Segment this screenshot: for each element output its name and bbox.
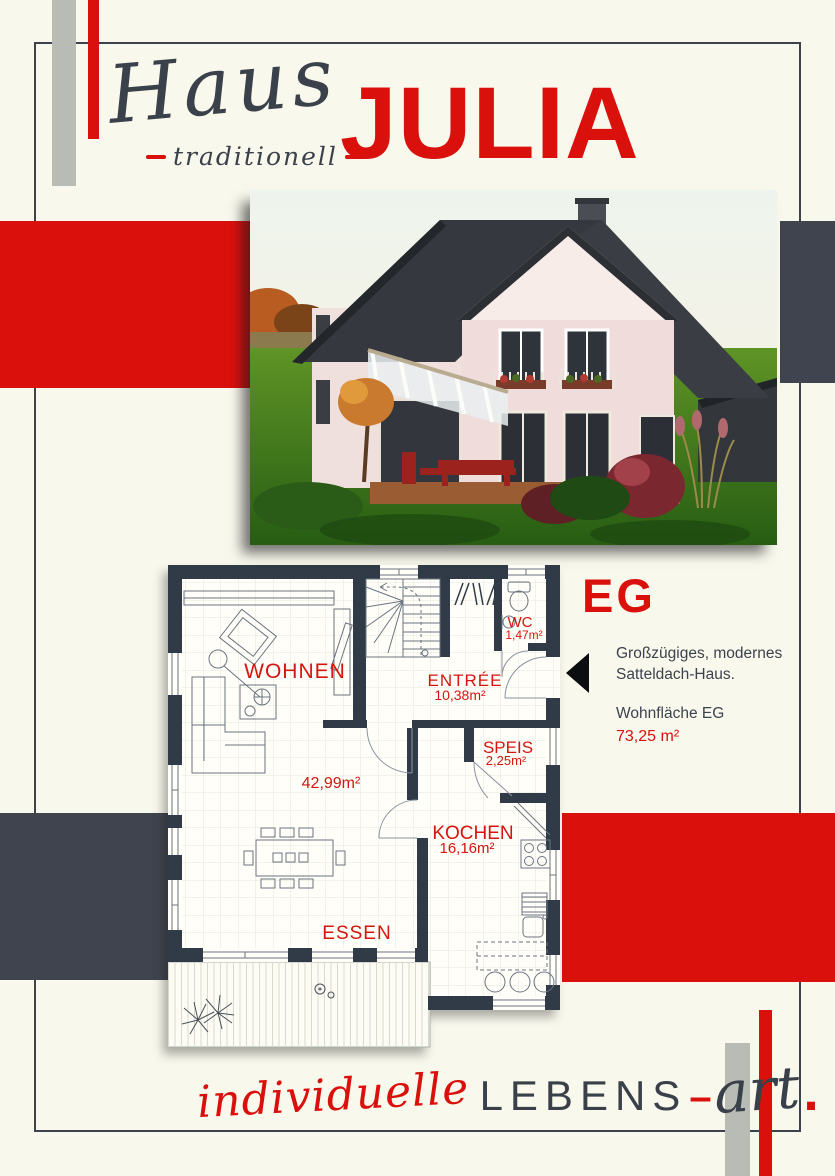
room-area-kochen: 16,16m² <box>439 840 494 857</box>
dark-block-right <box>780 221 835 383</box>
slogan-period: . <box>803 1058 819 1123</box>
house-photo-illustration <box>250 190 777 545</box>
room-area-wc: 1,47m² <box>505 628 542 642</box>
room-label-essen: ESSEN <box>322 923 391 944</box>
tagline-text: traditionell <box>173 142 338 171</box>
floor-level-title: EG <box>582 568 656 623</box>
slogan-individuelle: individuelle <box>196 1063 471 1128</box>
brand-script-title: Haus <box>105 36 341 136</box>
area-value: 73,25 m² <box>616 726 791 748</box>
red-band-right <box>562 813 835 982</box>
model-name-title: JULIA <box>340 72 640 174</box>
house-photo <box>250 190 777 545</box>
slogan-hyphen: – <box>689 1075 711 1120</box>
description-line1: Großzügiges, modernes <box>616 644 791 665</box>
room-label-wohnen: WOHNEN <box>244 660 346 683</box>
slogan-art: art <box>711 1053 801 1127</box>
decor-bar-gray-top <box>52 0 76 186</box>
house-info: Großzügiges, modernes Satteldach-Haus. W… <box>616 644 791 747</box>
brochure-page: Haus traditionell JULIA <box>0 0 835 1176</box>
dark-block-left <box>0 813 168 980</box>
red-band-left <box>0 221 250 388</box>
floor-plan-drawing: WOHNEN 42,99m² ENTRÉE 10,38m² WC 1,47m² … <box>168 565 560 1055</box>
decor-bar-red-top <box>88 0 99 139</box>
footer-slogan: individuelle LEBENS – art . <box>238 1056 778 1124</box>
area-label: Wohnfläche EG <box>616 704 791 725</box>
description-line2: Satteldach-Haus. <box>616 665 791 686</box>
slogan-lebens: LEBENS <box>480 1072 688 1120</box>
room-area-living: 42,99m² <box>302 775 361 792</box>
tagline-dash-left <box>146 155 166 159</box>
room-area-entree: 10,38m² <box>434 687 486 703</box>
brand-tagline: traditionell <box>146 142 365 171</box>
room-area-speis: 2,25m² <box>486 753 527 768</box>
floor-plan: WOHNEN 42,99m² ENTRÉE 10,38m² WC 1,47m² … <box>168 565 560 1055</box>
entrance-arrow-icon <box>566 653 589 693</box>
